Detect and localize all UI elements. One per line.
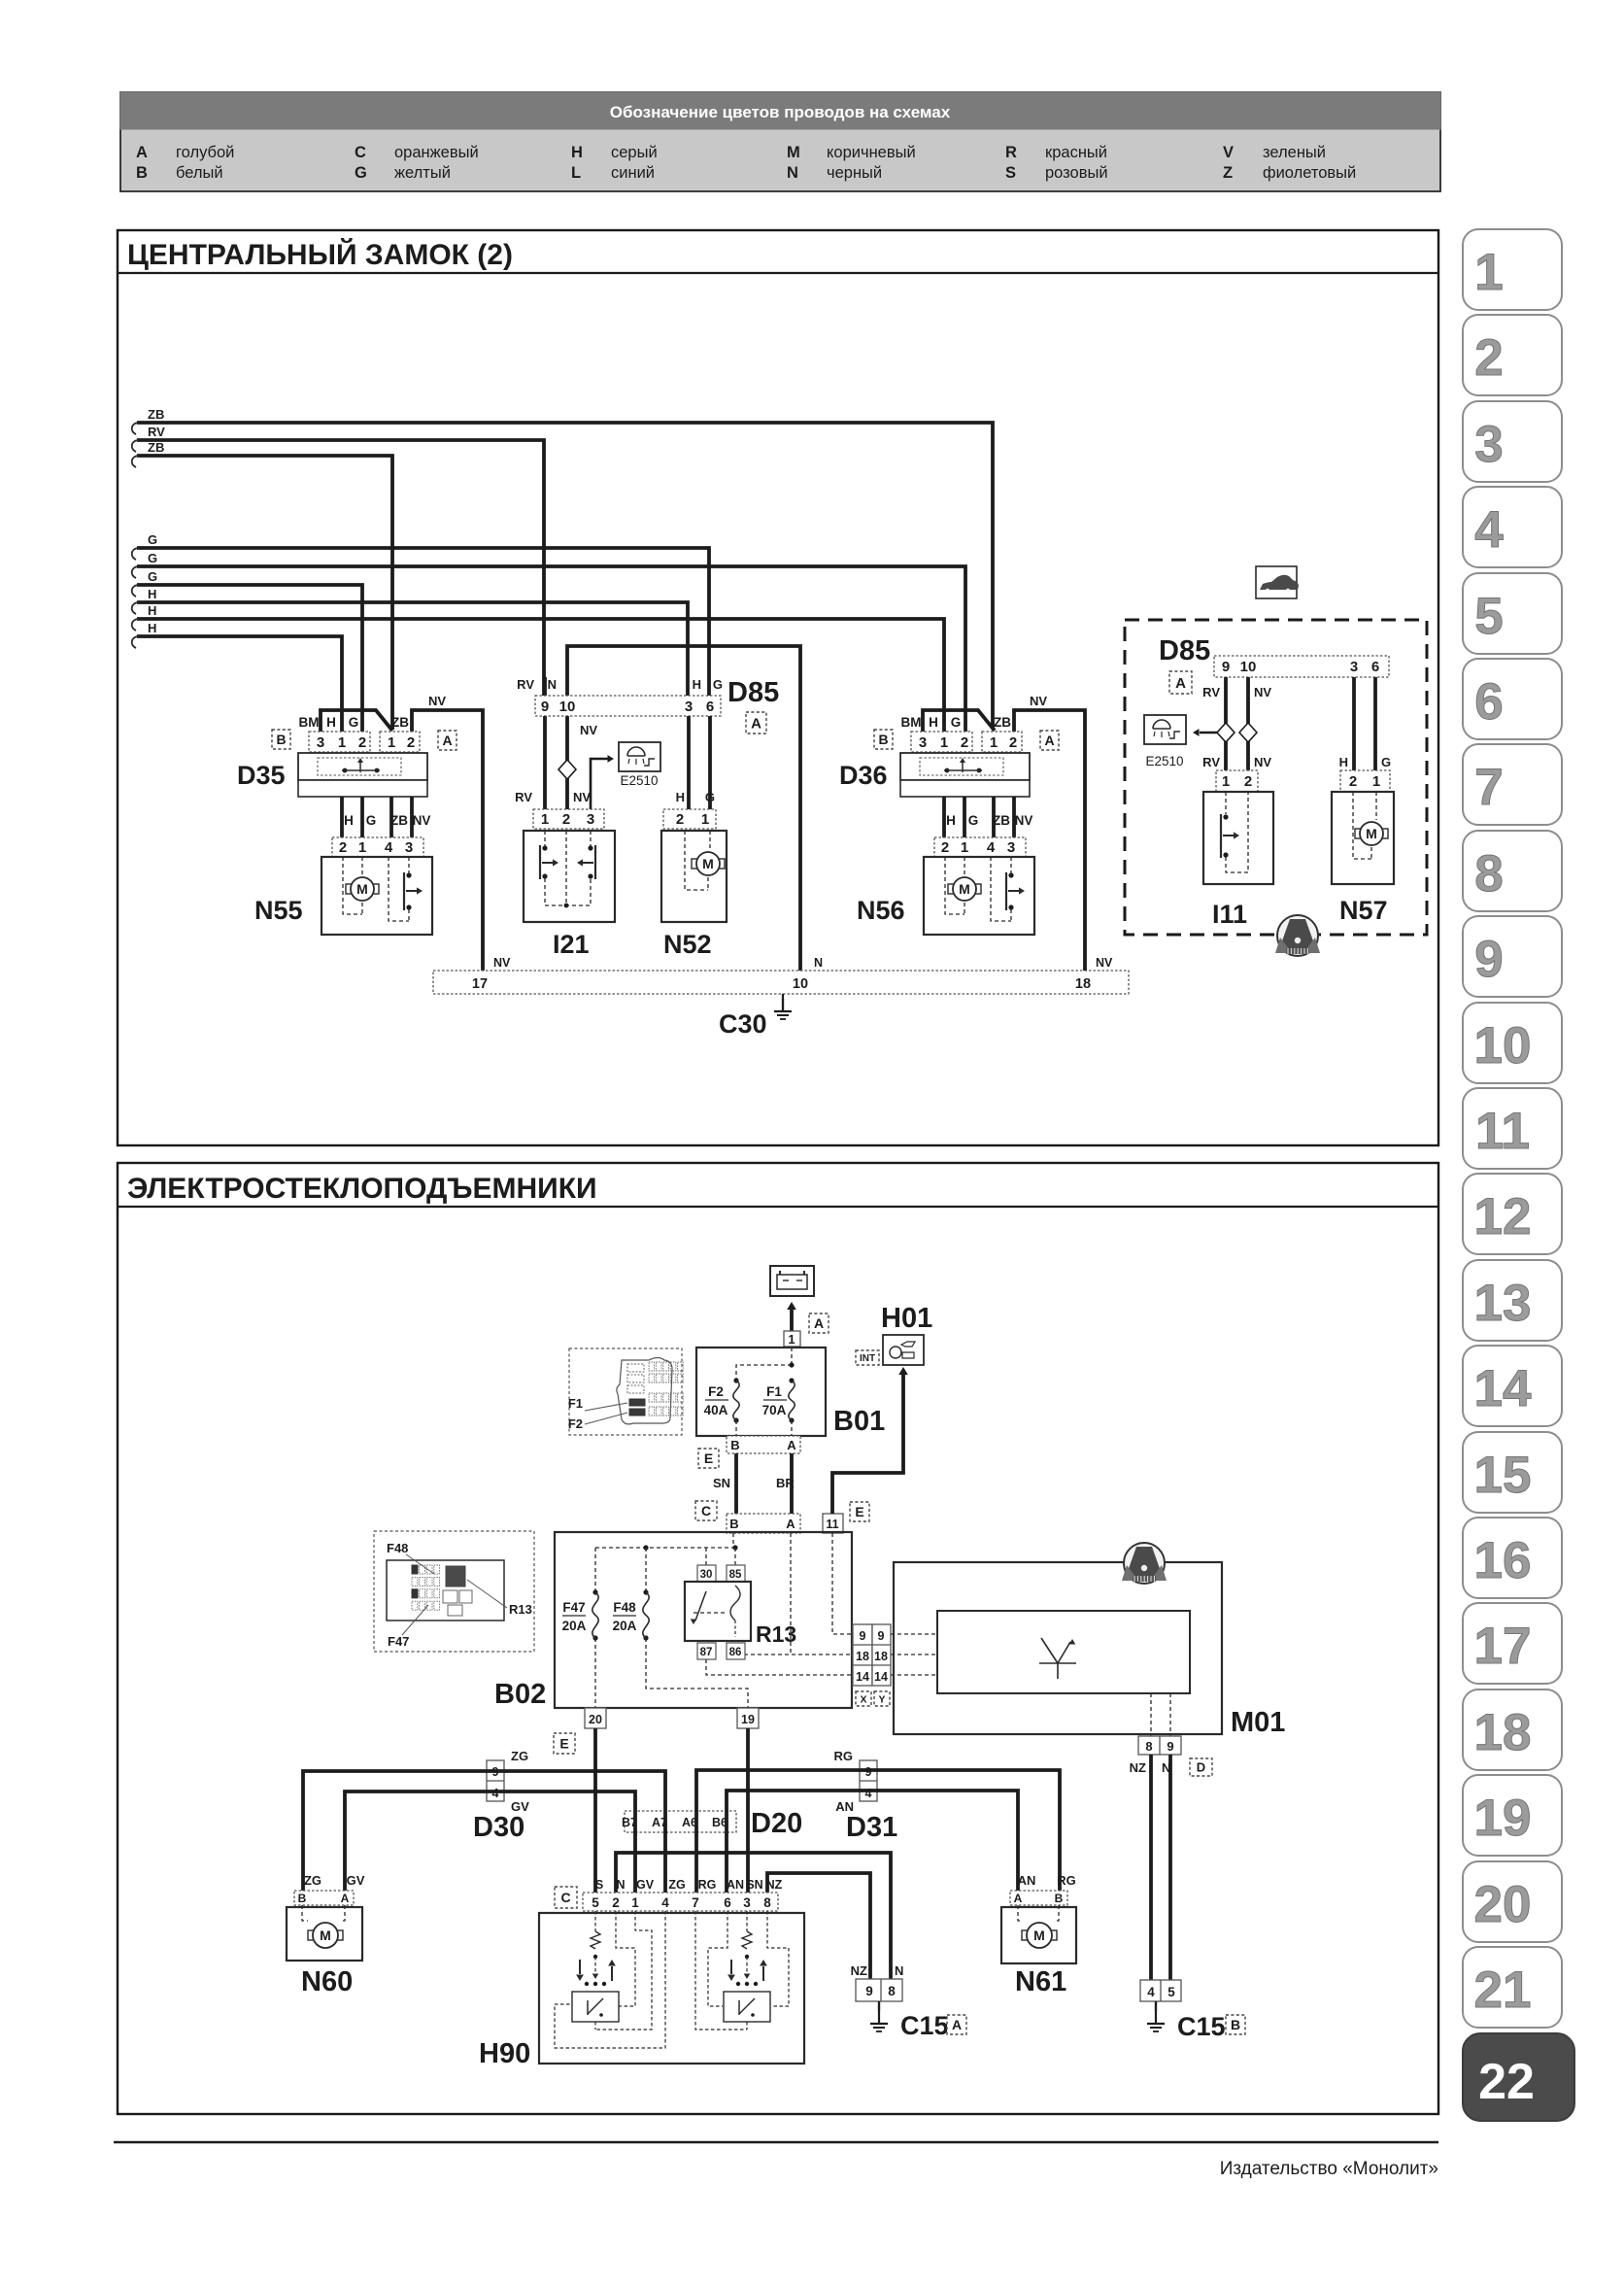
svg-text:B: B <box>729 1517 738 1531</box>
svg-text:C: C <box>355 144 366 161</box>
svg-text:G: G <box>713 677 723 692</box>
svg-text:E: E <box>855 1504 863 1519</box>
svg-text:G: G <box>148 569 157 584</box>
svg-text:G: G <box>1381 755 1391 769</box>
svg-text:2: 2 <box>1244 773 1252 790</box>
svg-text:Y: Y <box>878 1693 885 1705</box>
svg-text:9: 9 <box>492 1765 499 1779</box>
svg-text:22: 22 <box>1478 2054 1535 2110</box>
svg-text:7: 7 <box>692 1895 699 1910</box>
svg-text:1: 1 <box>1474 244 1503 301</box>
svg-text:I11: I11 <box>1212 900 1247 929</box>
svg-text:H: H <box>326 715 336 730</box>
svg-text:белый: белый <box>176 164 223 182</box>
svg-text:C: C <box>560 1890 570 1905</box>
svg-text:10: 10 <box>559 699 576 715</box>
svg-text:4: 4 <box>492 1787 499 1800</box>
svg-text:5: 5 <box>1474 588 1503 645</box>
svg-text:N: N <box>787 164 798 182</box>
svg-text:B: B <box>276 732 286 747</box>
svg-text:RV: RV <box>515 790 532 804</box>
svg-text:A: A <box>952 2017 962 2032</box>
svg-text:розовый: розовый <box>1045 164 1108 182</box>
svg-text:E: E <box>559 1736 568 1752</box>
svg-text:G: G <box>968 813 979 828</box>
svg-text:N: N <box>616 1878 625 1892</box>
svg-text:1: 1 <box>388 734 395 751</box>
svg-text:2: 2 <box>339 839 347 856</box>
svg-text:ZB: ZB <box>994 715 1011 730</box>
svg-text:NZ: NZ <box>766 1878 783 1892</box>
svg-text:NZ: NZ <box>1130 1760 1146 1775</box>
svg-text:9: 9 <box>1222 659 1230 675</box>
svg-text:H: H <box>676 790 685 804</box>
svg-text:A: A <box>786 1517 795 1531</box>
svg-text:RV: RV <box>1202 755 1220 769</box>
svg-text:H: H <box>1339 755 1348 769</box>
svg-text:GV: GV <box>347 1873 365 1888</box>
svg-text:A7: A7 <box>652 1816 667 1829</box>
svg-text:3: 3 <box>587 811 594 828</box>
svg-text:3: 3 <box>405 839 413 856</box>
svg-text:40A: 40A <box>704 1403 728 1417</box>
svg-text:оранжевый: оранжевый <box>394 144 479 161</box>
svg-text:H: H <box>148 603 156 618</box>
svg-text:I21: I21 <box>553 930 590 959</box>
svg-text:RV: RV <box>1202 685 1220 699</box>
svg-text:E2510: E2510 <box>1145 754 1183 768</box>
svg-text:3: 3 <box>1007 839 1015 856</box>
svg-text:N56: N56 <box>857 896 905 925</box>
svg-text:голубой: голубой <box>176 144 234 161</box>
svg-text:8: 8 <box>1145 1739 1152 1754</box>
svg-text:G: G <box>366 813 377 828</box>
svg-text:87: 87 <box>700 1647 713 1658</box>
svg-text:3: 3 <box>317 734 324 751</box>
svg-text:B: B <box>298 1892 307 1905</box>
svg-text:13: 13 <box>1474 1275 1532 1332</box>
svg-text:зеленый: зеленый <box>1263 144 1326 161</box>
svg-text:красный: красный <box>1045 144 1107 161</box>
svg-text:F47: F47 <box>388 1634 409 1649</box>
svg-text:A: A <box>1175 675 1186 692</box>
svg-text:RG: RG <box>698 1878 717 1892</box>
svg-text:NV: NV <box>1030 694 1047 708</box>
svg-text:NV: NV <box>580 723 597 737</box>
svg-text:ЭЛЕКТРОСТЕКЛОПОДЪЕМНИКИ: ЭЛЕКТРОСТЕКЛОПОДЪЕМНИКИ <box>127 1173 597 1205</box>
svg-text:3: 3 <box>1350 659 1358 675</box>
svg-text:M: M <box>356 881 368 897</box>
svg-text:A: A <box>814 1315 824 1331</box>
svg-text:C: C <box>701 1503 711 1518</box>
svg-text:GV: GV <box>636 1878 655 1892</box>
svg-text:NV: NV <box>573 790 591 804</box>
svg-text:C15: C15 <box>900 2011 949 2040</box>
svg-text:21: 21 <box>1474 1962 1532 2019</box>
svg-text:14: 14 <box>856 1670 869 1684</box>
svg-text:17: 17 <box>1474 1618 1532 1675</box>
svg-text:9: 9 <box>1474 931 1503 988</box>
svg-text:RV: RV <box>148 425 165 439</box>
svg-text:N52: N52 <box>663 930 712 959</box>
svg-text:4: 4 <box>987 839 996 856</box>
svg-text:1: 1 <box>1372 773 1380 790</box>
svg-text:3: 3 <box>1474 416 1503 473</box>
svg-text:2: 2 <box>961 734 968 751</box>
svg-text:7: 7 <box>1474 759 1503 816</box>
svg-text:H01: H01 <box>881 1303 932 1334</box>
svg-text:8: 8 <box>763 1895 771 1910</box>
svg-text:синий: синий <box>611 164 655 182</box>
svg-text:X: X <box>860 1693 866 1705</box>
svg-text:G: G <box>349 715 359 730</box>
svg-text:18: 18 <box>874 1650 888 1663</box>
svg-text:F2: F2 <box>708 1384 724 1399</box>
svg-text:D20: D20 <box>751 1808 802 1839</box>
svg-text:4: 4 <box>1147 1985 1155 1999</box>
svg-text:ZB: ZB <box>148 440 164 455</box>
svg-text:NZ: NZ <box>851 1963 867 1978</box>
svg-text:11: 11 <box>1475 1103 1530 1160</box>
svg-text:2: 2 <box>612 1895 620 1910</box>
svg-text:RG: RG <box>834 1749 854 1763</box>
svg-text:RG: RG <box>1057 1873 1076 1888</box>
svg-text:B: B <box>1055 1892 1064 1905</box>
svg-text:A: A <box>1014 1892 1023 1905</box>
svg-text:D85: D85 <box>1159 635 1210 666</box>
svg-text:2: 2 <box>676 811 684 828</box>
svg-text:D31: D31 <box>846 1812 897 1843</box>
svg-text:4: 4 <box>1474 501 1504 559</box>
svg-text:12: 12 <box>1474 1188 1532 1245</box>
svg-text:B02: B02 <box>494 1679 546 1710</box>
svg-text:E: E <box>704 1450 713 1466</box>
svg-text:N61: N61 <box>1015 1966 1066 1997</box>
svg-text:ZB: ZB <box>391 715 409 730</box>
svg-text:18: 18 <box>1474 1704 1532 1761</box>
svg-text:G: G <box>951 715 962 730</box>
svg-text:9: 9 <box>878 1629 885 1643</box>
svg-text:BM: BM <box>901 715 922 730</box>
svg-text:H: H <box>148 587 156 601</box>
svg-text:D: D <box>1197 1760 1205 1775</box>
svg-text:1: 1 <box>1222 773 1230 790</box>
svg-text:желтый: желтый <box>394 164 451 182</box>
svg-text:N57: N57 <box>1339 896 1388 925</box>
svg-text:NV: NV <box>428 694 446 708</box>
svg-text:H: H <box>148 621 156 635</box>
svg-text:14: 14 <box>874 1670 888 1684</box>
svg-text:N: N <box>548 677 557 692</box>
svg-text:M: M <box>1033 1928 1045 1943</box>
svg-text:3: 3 <box>685 699 693 715</box>
svg-text:M01: M01 <box>1231 1707 1285 1738</box>
svg-text:ZB: ZB <box>993 813 1010 828</box>
svg-text:G: G <box>355 164 367 182</box>
svg-text:AN: AN <box>727 1878 744 1892</box>
svg-text:B: B <box>730 1438 739 1452</box>
svg-text:D30: D30 <box>473 1812 524 1843</box>
svg-text:4: 4 <box>661 1895 669 1910</box>
svg-text:9: 9 <box>1167 1739 1173 1754</box>
svg-text:1: 1 <box>541 811 549 828</box>
svg-text:черный: черный <box>827 164 882 182</box>
svg-text:3: 3 <box>919 734 927 751</box>
svg-text:L: L <box>571 164 581 182</box>
svg-text:20: 20 <box>1474 1876 1532 1933</box>
svg-text:85: 85 <box>729 1569 742 1581</box>
svg-text:1: 1 <box>358 839 366 856</box>
svg-text:G: G <box>148 551 157 565</box>
svg-text:AN: AN <box>1018 1873 1036 1888</box>
svg-text:8: 8 <box>1474 845 1503 903</box>
svg-text:H: H <box>571 144 583 161</box>
svg-text:11: 11 <box>826 1518 838 1531</box>
svg-text:S: S <box>595 1878 603 1892</box>
svg-text:Z: Z <box>1223 164 1233 182</box>
svg-text:SN: SN <box>713 1476 730 1490</box>
svg-text:1: 1 <box>338 734 346 751</box>
svg-text:фиолетовый: фиолетовый <box>1263 164 1356 182</box>
svg-text:A: A <box>787 1438 796 1452</box>
svg-text:F2: F2 <box>568 1416 583 1431</box>
svg-text:ZG: ZG <box>304 1873 321 1888</box>
svg-text:B7: B7 <box>622 1816 637 1829</box>
svg-text:2: 2 <box>358 734 366 751</box>
svg-text:R13: R13 <box>509 1602 532 1617</box>
svg-text:4: 4 <box>385 839 393 856</box>
svg-text:1: 1 <box>961 839 968 856</box>
svg-text:6: 6 <box>1474 673 1503 731</box>
svg-text:M: M <box>1366 826 1377 841</box>
svg-text:2: 2 <box>1009 734 1017 751</box>
svg-text:RV: RV <box>517 677 534 692</box>
svg-text:F48: F48 <box>387 1541 408 1555</box>
svg-text:10: 10 <box>1474 1017 1532 1075</box>
svg-text:2: 2 <box>562 811 570 828</box>
svg-text:INT: INT <box>860 1353 875 1364</box>
svg-text:NV: NV <box>1015 813 1033 828</box>
svg-text:N60: N60 <box>301 1966 353 1997</box>
svg-text:2: 2 <box>941 839 949 856</box>
svg-text:NV: NV <box>1254 685 1271 699</box>
svg-text:2: 2 <box>407 734 415 751</box>
svg-text:20A: 20A <box>613 1619 637 1633</box>
svg-text:BM: BM <box>299 715 320 730</box>
svg-text:M: M <box>320 1928 331 1943</box>
svg-text:B: B <box>878 732 888 747</box>
svg-text:V: V <box>1223 144 1234 161</box>
svg-text:8: 8 <box>888 1984 896 1998</box>
svg-text:R: R <box>1005 144 1017 161</box>
svg-text:H: H <box>929 715 938 730</box>
svg-text:M: M <box>959 881 970 897</box>
svg-text:A: A <box>1044 733 1054 748</box>
svg-text:B: B <box>1231 2017 1240 2032</box>
svg-text:R13: R13 <box>756 1621 796 1647</box>
svg-text:9: 9 <box>860 1629 866 1643</box>
svg-text:F48: F48 <box>613 1600 636 1615</box>
svg-text:NV: NV <box>1096 956 1113 970</box>
svg-text:A6: A6 <box>682 1816 697 1829</box>
svg-text:BR: BR <box>776 1476 795 1490</box>
svg-text:1: 1 <box>990 734 998 751</box>
svg-text:2: 2 <box>1349 773 1357 790</box>
svg-text:1: 1 <box>701 811 709 828</box>
svg-text:B: B <box>136 164 148 182</box>
svg-text:9: 9 <box>541 699 549 715</box>
svg-text:Обозначение цветов проводов на: Обозначение цветов проводов на схемах <box>610 103 951 121</box>
svg-text:серый: серый <box>611 144 658 161</box>
svg-text:G: G <box>705 790 715 804</box>
svg-text:18: 18 <box>856 1650 869 1663</box>
svg-text:6: 6 <box>724 1895 731 1910</box>
svg-text:A: A <box>442 733 452 748</box>
svg-text:A: A <box>751 715 761 732</box>
svg-text:N: N <box>895 1963 903 1978</box>
svg-text:15: 15 <box>1474 1447 1532 1504</box>
svg-text:H90: H90 <box>479 2038 530 2069</box>
svg-text:D85: D85 <box>727 677 779 708</box>
svg-text:19: 19 <box>1474 1790 1532 1847</box>
svg-text:1: 1 <box>788 1332 795 1347</box>
svg-text:6: 6 <box>1371 659 1379 675</box>
svg-text:30: 30 <box>700 1569 713 1581</box>
svg-text:86: 86 <box>729 1647 742 1658</box>
svg-text:5: 5 <box>1167 1985 1175 1999</box>
svg-text:F47: F47 <box>562 1600 585 1615</box>
svg-text:M: M <box>702 856 714 871</box>
svg-text:ЦЕНТРАЛЬНЫЙ ЗАМОК (2): ЦЕНТРАЛЬНЫЙ ЗАМОК (2) <box>127 238 513 271</box>
svg-text:ZB: ZB <box>390 813 408 828</box>
svg-text:C30: C30 <box>719 1009 767 1039</box>
svg-text:17: 17 <box>472 976 488 992</box>
svg-text:9: 9 <box>865 1765 872 1779</box>
svg-text:N: N <box>814 956 823 970</box>
svg-text:NV: NV <box>1254 755 1271 769</box>
svg-text:N55: N55 <box>254 896 303 925</box>
svg-text:D36: D36 <box>839 761 888 790</box>
svg-text:9: 9 <box>865 1984 873 1998</box>
svg-text:H: H <box>946 813 956 828</box>
svg-text:18: 18 <box>1075 976 1091 992</box>
svg-text:5: 5 <box>592 1895 599 1910</box>
svg-text:H: H <box>693 677 701 692</box>
svg-text:20A: 20A <box>562 1619 587 1633</box>
svg-text:S: S <box>1005 164 1016 182</box>
svg-text:70A: 70A <box>762 1403 787 1417</box>
svg-text:ZG: ZG <box>511 1749 528 1763</box>
svg-text:M: M <box>787 144 800 161</box>
svg-text:NV: NV <box>493 956 511 970</box>
svg-text:19: 19 <box>741 1713 755 1726</box>
svg-text:F1: F1 <box>568 1396 583 1411</box>
svg-text:2: 2 <box>1474 329 1503 387</box>
svg-text:G: G <box>148 532 157 547</box>
svg-text:D35: D35 <box>237 761 286 790</box>
svg-text:A: A <box>136 144 148 161</box>
svg-text:B6: B6 <box>712 1816 727 1829</box>
svg-text:Издательство «Монолит»: Издательство «Монолит» <box>1220 2159 1438 2179</box>
svg-text:1: 1 <box>631 1895 639 1910</box>
svg-text:6: 6 <box>706 699 714 715</box>
svg-text:NV: NV <box>413 813 431 828</box>
svg-text:A: A <box>341 1892 350 1905</box>
svg-text:F1: F1 <box>766 1384 782 1399</box>
svg-text:1: 1 <box>940 734 948 751</box>
svg-text:14: 14 <box>1474 1360 1532 1417</box>
svg-text:3: 3 <box>743 1895 751 1910</box>
svg-text:ZB: ZB <box>148 407 164 422</box>
svg-text:SN: SN <box>746 1878 762 1892</box>
svg-text:20: 20 <box>589 1713 602 1726</box>
svg-text:ZG: ZG <box>668 1878 685 1892</box>
svg-text:E2510: E2510 <box>620 773 658 788</box>
svg-text:B01: B01 <box>833 1406 885 1437</box>
svg-text:H: H <box>344 813 354 828</box>
svg-text:C15: C15 <box>1177 2012 1226 2041</box>
svg-text:16: 16 <box>1474 1532 1532 1589</box>
svg-text:10: 10 <box>793 976 808 992</box>
svg-text:10: 10 <box>1240 659 1257 675</box>
svg-text:коричневый: коричневый <box>827 144 916 161</box>
svg-text:4: 4 <box>865 1787 872 1800</box>
